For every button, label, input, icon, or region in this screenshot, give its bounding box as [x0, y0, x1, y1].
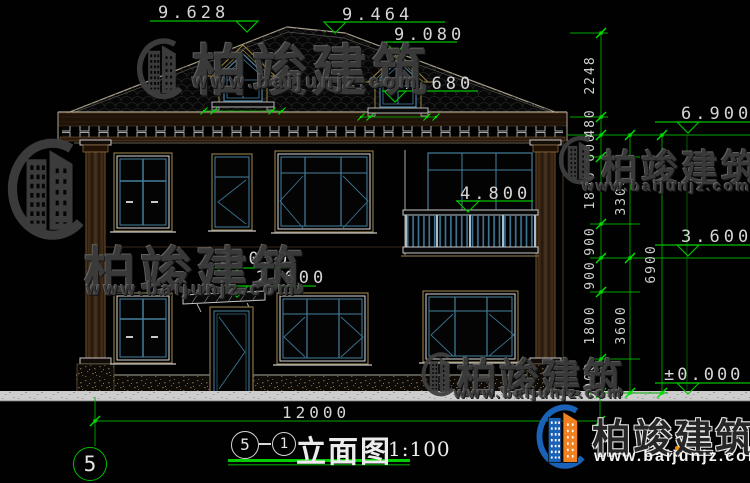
axis-bubble-5: 5 — [73, 447, 107, 481]
window-2f-narrow — [208, 154, 256, 231]
title-bubble-5: 5 — [231, 431, 259, 459]
elevation-ridge-left: 9.628 — [158, 3, 229, 23]
company-logo-url: www.baijunjz.com — [594, 448, 750, 466]
entry-door — [204, 307, 259, 397]
title-bubble-1: 1 — [272, 432, 296, 456]
elevation-second-floor: 3.600 — [681, 227, 750, 247]
dim-right-6900: 6900 — [644, 229, 660, 299]
watermark-brand: 柏竣建筑 — [192, 26, 432, 106]
watermark-url: www.baijunjz.com — [86, 279, 297, 300]
drawing-scale: 1:100 — [388, 437, 451, 461]
elevation-ground: ±0.000 — [664, 365, 743, 385]
logo-url-dot — [675, 446, 679, 450]
ground-strip — [0, 391, 750, 401]
dim-bottom-12000: 12000 — [282, 403, 350, 422]
watermark-url: www.baijunjz.com — [454, 385, 623, 402]
watermark-logo-icon — [2, 98, 94, 288]
elevation-ridge-right: 9.464 — [342, 5, 413, 25]
elevation-eave: 6.900 — [681, 104, 750, 124]
company-logo-icon — [532, 402, 592, 476]
cad-elevation-drawing: 9.628 9.464 9.080 7.680 6.900 4.800 3.05… — [0, 0, 750, 483]
watermark-url: www.baijunjz.com — [192, 72, 420, 94]
window-2f-wide — [271, 151, 377, 233]
watermark-url: www.baijunjz.com — [582, 178, 750, 195]
watermark-logo-icon — [133, 36, 189, 106]
title-dash — [259, 443, 271, 445]
eave-cornice — [58, 112, 567, 143]
drawing-title: 立面图 — [296, 427, 392, 471]
watermark-logo-icon — [419, 350, 459, 402]
window-2f-left — [110, 153, 176, 232]
elevation-balcony-rail: 4.800 — [460, 184, 531, 204]
